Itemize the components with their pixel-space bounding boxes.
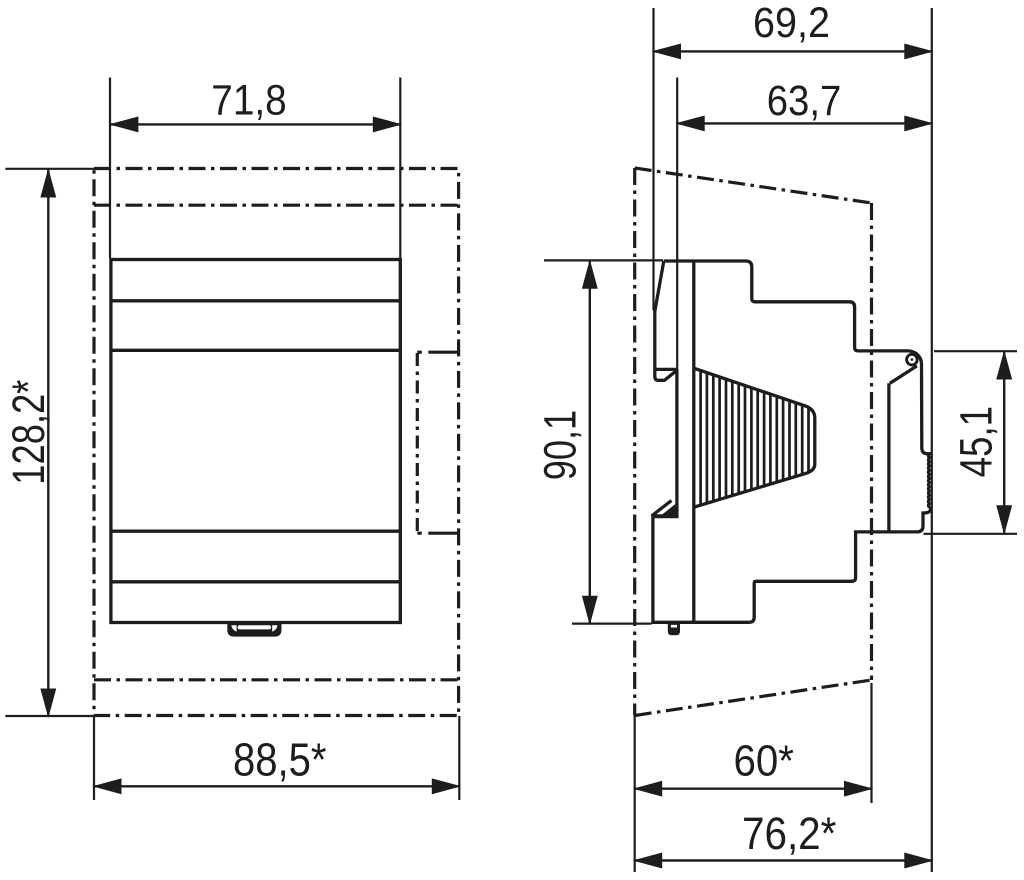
svg-text:71,8: 71,8 bbox=[211, 78, 287, 125]
svg-text:88,5*: 88,5* bbox=[233, 734, 327, 786]
svg-text:69,2: 69,2 bbox=[753, 0, 830, 47]
svg-text:128,2*: 128,2* bbox=[3, 380, 54, 485]
svg-text:45,1: 45,1 bbox=[951, 406, 1002, 478]
svg-text:90,1: 90,1 bbox=[535, 410, 586, 481]
svg-text:76,2*: 76,2* bbox=[742, 808, 837, 859]
svg-text:63,7: 63,7 bbox=[767, 78, 842, 125]
svg-text:60*: 60* bbox=[733, 737, 794, 786]
